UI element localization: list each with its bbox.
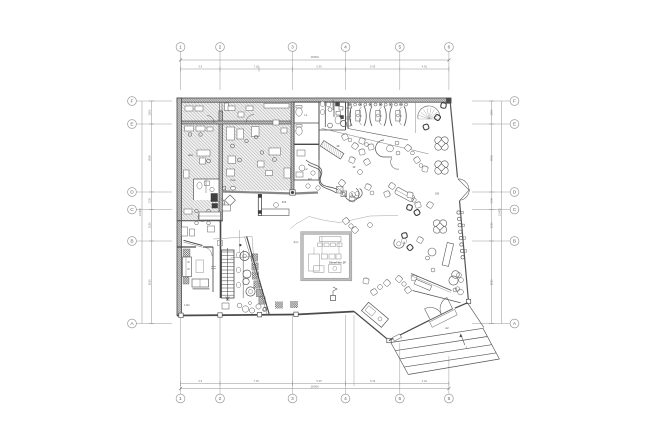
svg-text:109: 109 bbox=[435, 193, 440, 196]
svg-text:2300: 2300 bbox=[148, 109, 152, 115]
svg-text:ofce: ofce bbox=[188, 153, 194, 157]
svg-text:B: B bbox=[130, 239, 133, 245]
svg-text:1F: 1F bbox=[336, 144, 340, 148]
svg-text:8250: 8250 bbox=[148, 279, 152, 285]
svg-text:2: 2 bbox=[219, 45, 222, 51]
svg-text:1750: 1750 bbox=[490, 197, 494, 203]
svg-text:1.8m: 1.8m bbox=[184, 303, 190, 307]
svg-text:4: 4 bbox=[344, 396, 347, 402]
svg-text:C: C bbox=[513, 207, 517, 213]
svg-text:18000: 18000 bbox=[311, 384, 320, 388]
svg-text:D: D bbox=[513, 190, 517, 196]
svg-text:D: D bbox=[130, 190, 134, 196]
svg-text:F: F bbox=[513, 99, 516, 105]
svg-text:3150: 3150 bbox=[148, 222, 152, 228]
svg-text:5.43: 5.43 bbox=[370, 65, 376, 69]
svg-text:18000: 18000 bbox=[311, 55, 320, 59]
svg-text:6900: 6900 bbox=[490, 155, 494, 161]
svg-text:5: 5 bbox=[398, 45, 401, 51]
svg-text:F: F bbox=[131, 99, 134, 105]
svg-text:6900: 6900 bbox=[148, 155, 152, 161]
svg-text:B: B bbox=[513, 239, 516, 245]
svg-text:3.9: 3.9 bbox=[198, 379, 202, 383]
svg-text:5: 5 bbox=[398, 396, 401, 402]
svg-text:5.43: 5.43 bbox=[370, 379, 376, 383]
svg-text:A2: A2 bbox=[445, 326, 449, 330]
svg-text:1750: 1750 bbox=[148, 197, 152, 203]
svg-text:2: 2 bbox=[219, 396, 222, 402]
svg-text:L2: L2 bbox=[304, 167, 308, 171]
svg-text:ktn: ktn bbox=[226, 298, 230, 302]
svg-text:4: 4 bbox=[344, 45, 347, 51]
svg-text:C: C bbox=[130, 207, 134, 213]
svg-text:21450: 21450 bbox=[138, 208, 142, 216]
svg-text:3: 3 bbox=[291, 396, 294, 402]
svg-text:E: E bbox=[130, 122, 133, 128]
svg-text:SilverNite 2F: SilverNite 2F bbox=[329, 260, 346, 264]
svg-text:3.9: 3.9 bbox=[198, 65, 202, 69]
svg-text:5.35: 5.35 bbox=[316, 65, 322, 69]
svg-text:3: 3 bbox=[291, 45, 294, 51]
svg-text:1F: 1F bbox=[352, 165, 356, 169]
svg-text:E: E bbox=[513, 122, 516, 128]
svg-text:1: 1 bbox=[179, 45, 182, 51]
svg-text:2300: 2300 bbox=[490, 109, 494, 115]
svg-text:21450: 21450 bbox=[498, 208, 502, 216]
svg-text:4.91: 4.91 bbox=[422, 65, 428, 69]
svg-text:dnn: dnn bbox=[294, 240, 299, 244]
svg-text:7.25: 7.25 bbox=[254, 65, 260, 69]
svg-text:3150: 3150 bbox=[490, 222, 494, 228]
svg-text:6: 6 bbox=[448, 396, 451, 402]
svg-text:fnce: fnce bbox=[230, 178, 236, 182]
svg-text:A01: A01 bbox=[308, 177, 313, 181]
svg-text:5.35: 5.35 bbox=[316, 379, 322, 383]
svg-text:4F6: 4F6 bbox=[282, 200, 287, 204]
svg-text:7.25: 7.25 bbox=[254, 379, 260, 383]
svg-text:L1: L1 bbox=[304, 113, 308, 117]
svg-text:8250: 8250 bbox=[490, 279, 494, 285]
svg-text:4.91: 4.91 bbox=[422, 379, 428, 383]
svg-text:6: 6 bbox=[448, 45, 451, 51]
svg-text:1: 1 bbox=[466, 346, 468, 350]
svg-text:1: 1 bbox=[179, 396, 182, 402]
